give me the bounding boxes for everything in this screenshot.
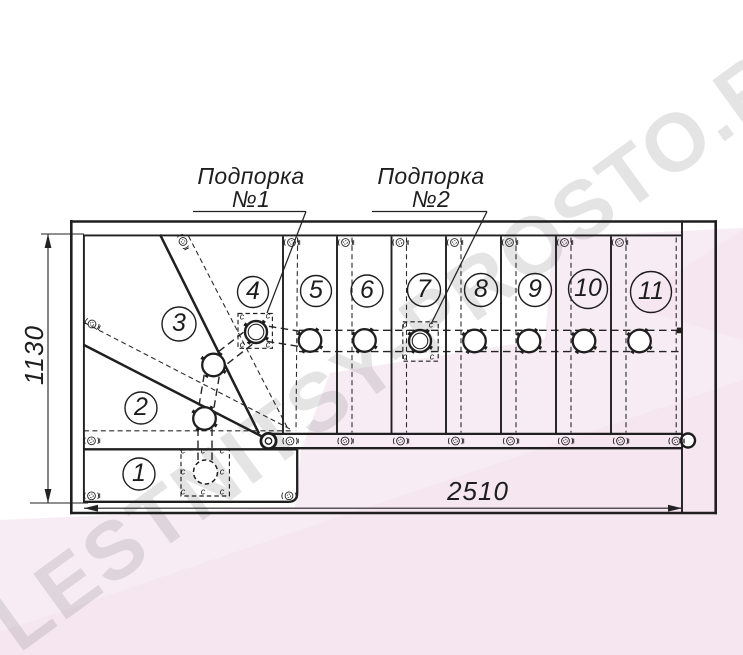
stair-plan-page: LESTNITSY-PROSTO.RU xyxy=(0,0,743,655)
handrail-end-caps xyxy=(261,433,695,448)
connection-mark: c xyxy=(220,488,225,497)
step-label-2: 2 xyxy=(119,395,163,420)
connection-mark: c xyxy=(429,321,434,330)
connection-mark: c xyxy=(181,488,186,497)
connection-mark: c xyxy=(240,341,245,350)
connection-mark: c xyxy=(240,313,245,322)
support1-callout-line1: Подпорка xyxy=(181,165,321,188)
step-number-circles xyxy=(123,270,672,491)
connection-mark: c xyxy=(403,321,408,330)
step-label-3: 3 xyxy=(157,311,201,336)
connection-mark: c xyxy=(220,447,225,456)
dimension-width-label: 2510 xyxy=(418,478,538,504)
step-label-11: 11 xyxy=(629,279,673,304)
connection-mark: c xyxy=(181,447,186,456)
step-label-4: 4 xyxy=(231,279,275,304)
stair-plan-drawing xyxy=(0,0,743,655)
support1-callout-line2: №1 xyxy=(181,188,321,211)
connection-mark: c xyxy=(403,353,408,362)
dimension-height-label: 1130 xyxy=(21,295,47,415)
connection-mark: c xyxy=(430,353,435,362)
callout-leaders xyxy=(193,212,487,325)
support2-callout-line2: №2 xyxy=(361,188,501,211)
connection-mark: c xyxy=(220,468,225,477)
step-label-7: 7 xyxy=(402,277,446,302)
step-label-6: 6 xyxy=(345,278,389,303)
step-label-8: 8 xyxy=(459,277,503,302)
spine-modules xyxy=(187,315,657,484)
support2-callout-line1: Подпорка xyxy=(361,165,501,188)
frame-and-treads xyxy=(70,220,717,514)
connection-mark: c xyxy=(181,468,186,477)
step-label-1: 1 xyxy=(117,461,161,486)
connection-mark: c xyxy=(201,447,206,456)
step-label-10: 10 xyxy=(566,276,610,301)
connection-mark: c xyxy=(266,312,271,321)
step-label-5: 5 xyxy=(294,278,338,303)
connection-mark: c xyxy=(201,488,206,497)
connection-mark: c xyxy=(266,341,271,350)
step-label-9: 9 xyxy=(513,277,557,302)
